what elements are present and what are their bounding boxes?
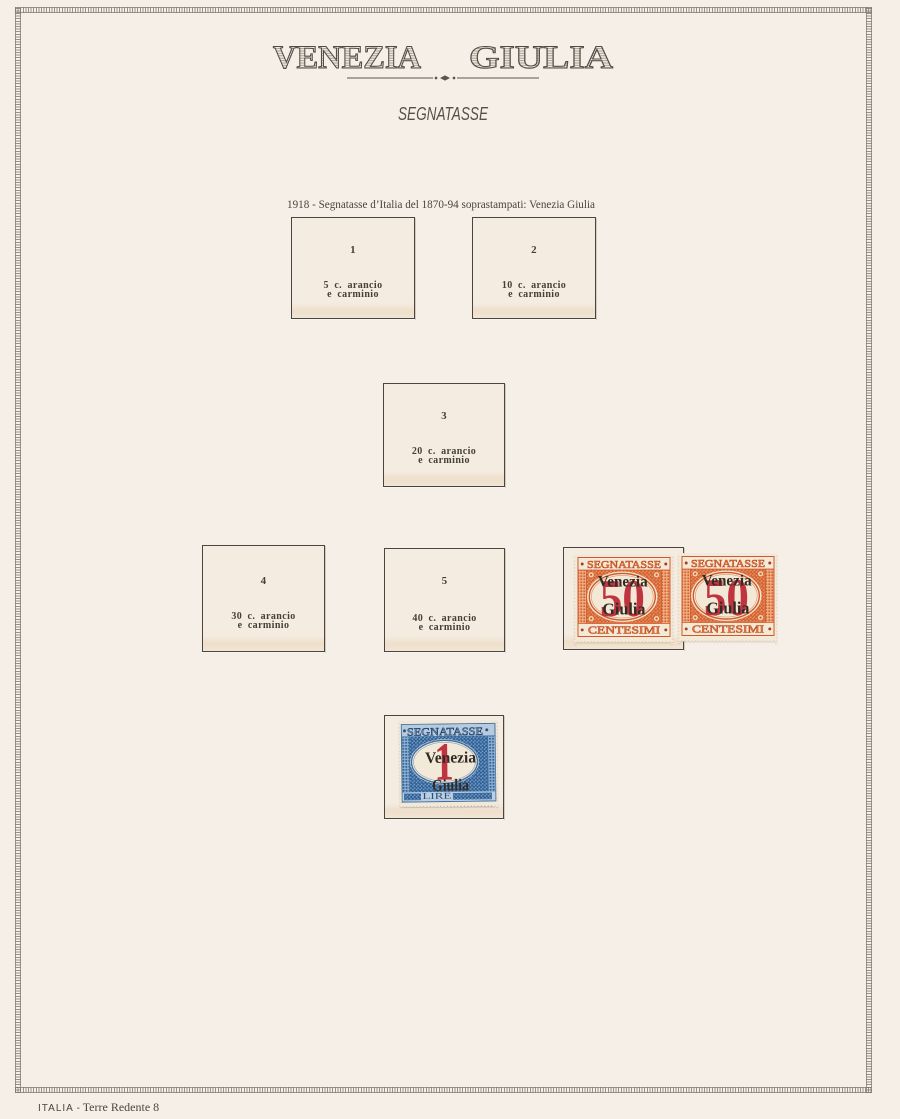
svg-text:SEGNATASSE: SEGNATASSE: [407, 725, 483, 738]
svg-text:GIULIA: GIULIA: [469, 40, 613, 76]
svg-text:Giulia: Giulia: [602, 599, 645, 618]
svg-text:CENTESIMI: CENTESIMI: [588, 625, 660, 637]
svg-text:VENEZIA: VENEZIA: [273, 40, 421, 76]
svg-text:Venezia: Venezia: [425, 749, 476, 767]
svg-text:SEGNATASSE: SEGNATASSE: [587, 559, 661, 571]
svg-text:Venezia: Venezia: [598, 573, 648, 590]
svg-text:SEGNATASSE: SEGNATASSE: [398, 104, 489, 124]
svg-text:1918 - Segnatasse d’Italia del: 1918 - Segnatasse d’Italia del 1870-94 s…: [287, 197, 596, 211]
svg-text:Giulia: Giulia: [432, 775, 469, 794]
